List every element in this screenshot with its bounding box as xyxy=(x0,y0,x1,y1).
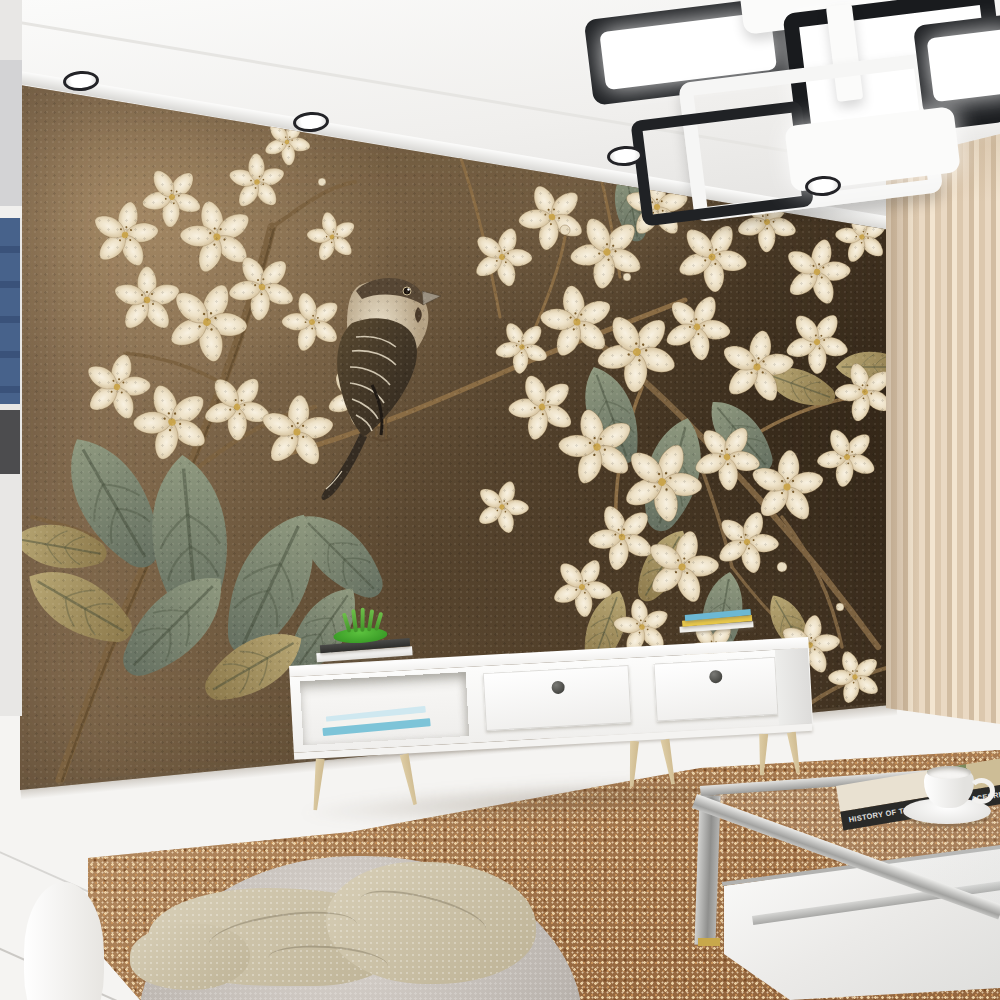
coffee-cup-handle xyxy=(968,778,995,804)
lamp-black-frame xyxy=(913,13,1000,118)
console-side-panel xyxy=(775,648,812,726)
side-room-window xyxy=(0,410,20,474)
side-room-ledge xyxy=(0,206,22,218)
coffee-cup-rim xyxy=(927,766,971,779)
console-leg xyxy=(307,758,328,811)
console-leg xyxy=(783,731,806,775)
console-open-shelf xyxy=(300,672,469,745)
console-drawer xyxy=(653,657,778,722)
curtain xyxy=(886,130,1000,730)
console-leg xyxy=(657,738,681,786)
console-leg xyxy=(396,752,423,806)
lamp-black-frame xyxy=(630,100,814,226)
console-leg xyxy=(754,733,772,776)
side-room-wall xyxy=(0,60,22,206)
side-room-strip xyxy=(0,0,22,716)
table-foot-pad xyxy=(698,938,720,946)
beige-throw-blanket xyxy=(148,862,548,1000)
blue-roman-blind xyxy=(0,218,20,404)
lamp-light-panel xyxy=(927,28,1000,102)
living-room-photo: HISTORY OF THE GREATEST PLACES RICHARD H… xyxy=(0,0,1000,1000)
sprout-plant xyxy=(360,608,364,632)
console-leg xyxy=(624,740,643,787)
console-drawer xyxy=(483,665,632,731)
